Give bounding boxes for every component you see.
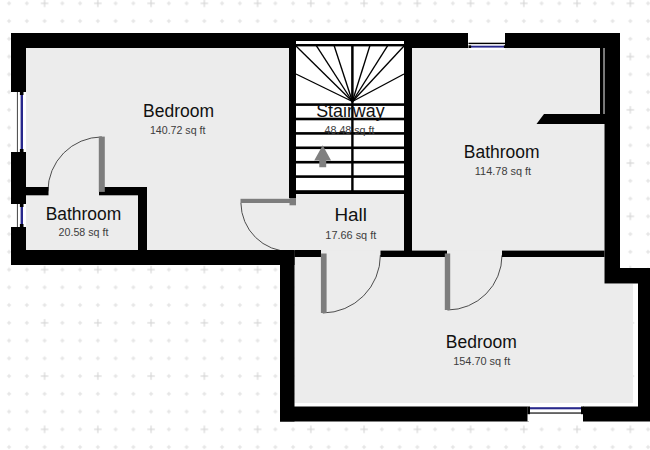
svg-text:17.66 sq ft: 17.66 sq ft <box>325 229 376 241</box>
svg-text:Bedroom: Bedroom <box>143 101 214 121</box>
svg-text:Bathroom: Bathroom <box>464 142 540 162</box>
svg-text:Bathroom: Bathroom <box>46 204 122 224</box>
svg-text:114.78 sq ft: 114.78 sq ft <box>475 165 531 177</box>
svg-text:20.58 sq ft: 20.58 sq ft <box>59 226 109 238</box>
svg-text:154.70 sq ft: 154.70 sq ft <box>453 355 510 367</box>
svg-text:Stairway: Stairway <box>316 101 385 121</box>
svg-text:48.48 sq ft: 48.48 sq ft <box>325 124 375 136</box>
svg-text:140.72 sq ft: 140.72 sq ft <box>150 124 206 136</box>
svg-text:Hall: Hall <box>334 205 367 225</box>
svg-text:Bedroom: Bedroom <box>446 332 517 352</box>
